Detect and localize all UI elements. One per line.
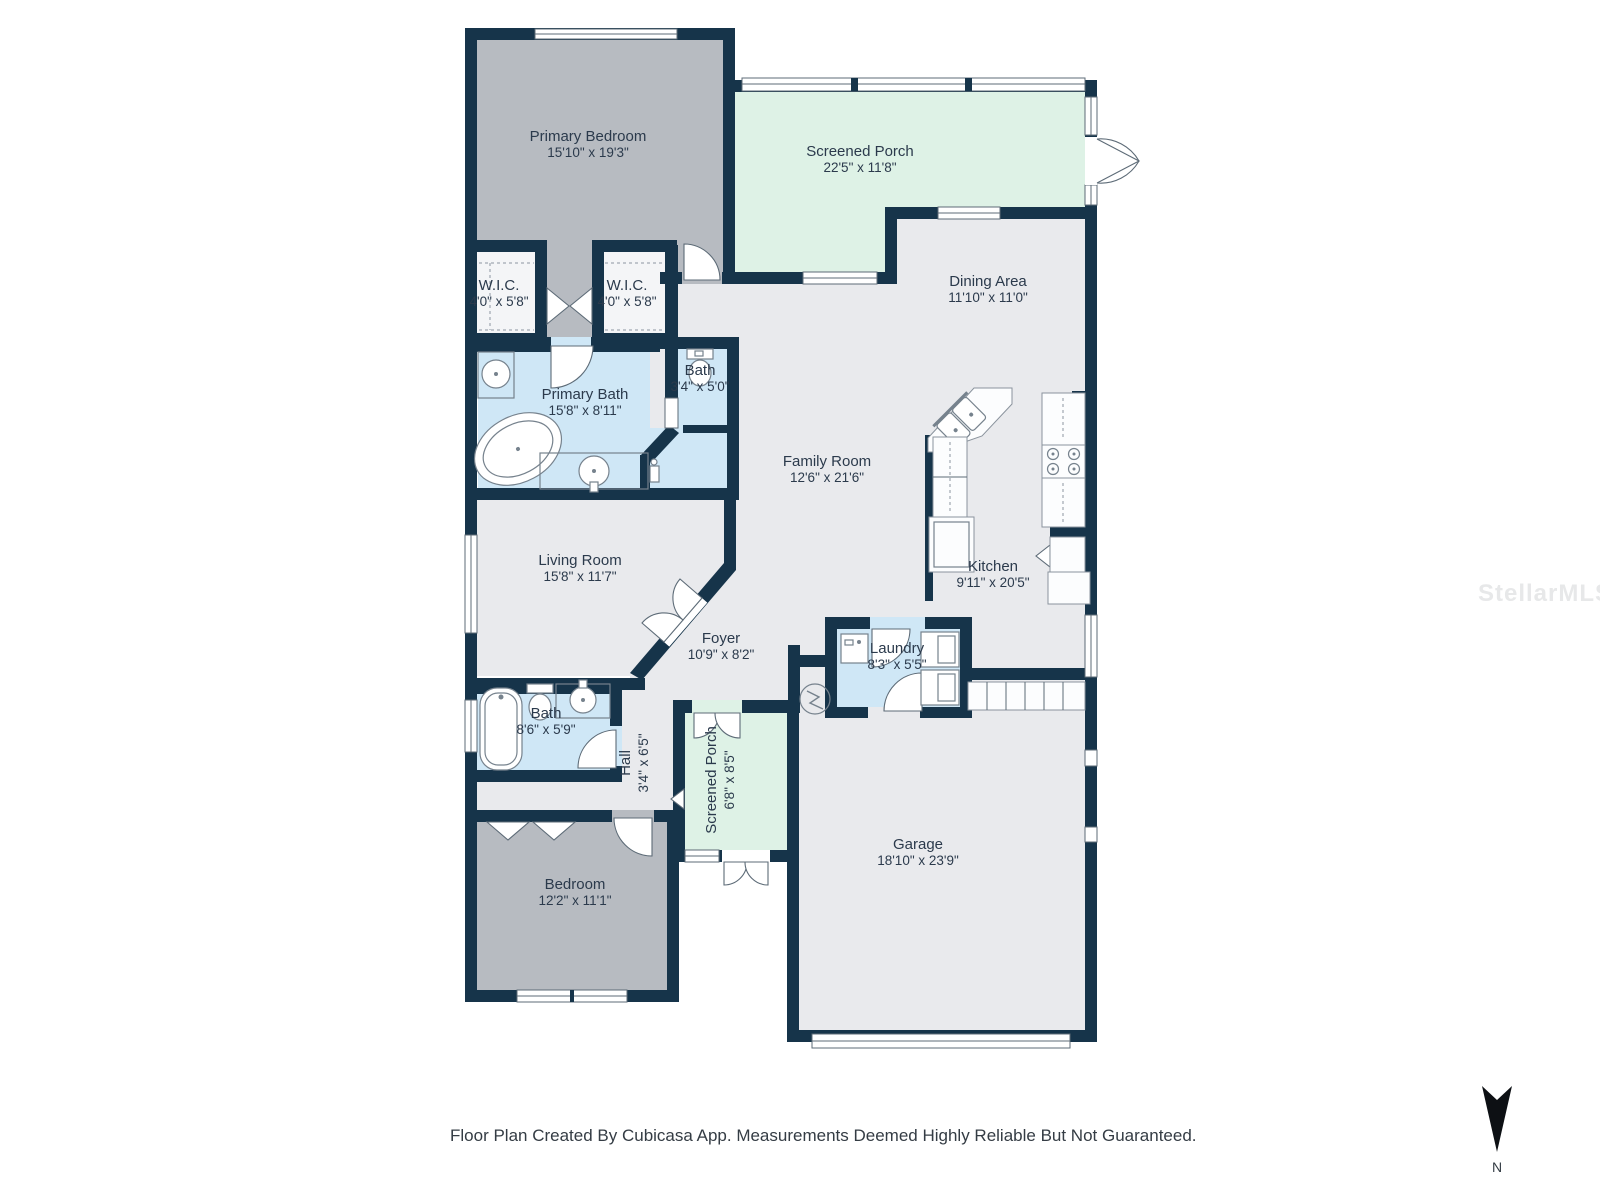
window-kitchen-right: [1085, 615, 1097, 677]
window-bedroom2-bottom: [517, 990, 627, 1002]
watermark: StellarMLS: [1478, 580, 1600, 607]
room-dims-laundry: 8'3" x 5'5": [867, 657, 926, 672]
garage-steps: [968, 682, 1085, 710]
svg-text:Hall: Hall: [617, 750, 634, 776]
room-dims-wic-left: 4'0" x 5'8": [469, 294, 528, 309]
svg-text:Screened Porch: Screened Porch: [703, 726, 720, 834]
window-primary-bedroom-top: [535, 29, 677, 39]
door-porch-exterior: [1097, 139, 1139, 183]
room-dims-bedroom2: 12'2" x 11'1": [538, 893, 611, 908]
toilet-icon: [527, 684, 553, 693]
door-porch-small-exterior-1: [724, 862, 747, 885]
laundry-sink-icon: [841, 634, 868, 663]
room-label-family-room: Family Room: [783, 453, 871, 470]
garage-side-opening-2: [1085, 827, 1097, 842]
window-porch-family: [803, 272, 877, 284]
window-porch-small-bottom: [685, 850, 719, 862]
room-label-wic-left: W.I.C.: [479, 277, 520, 294]
room-label-living-room: Living Room: [538, 552, 621, 569]
door-porch-small-exterior-2: [745, 862, 768, 885]
footer-disclaimer: Floor Plan Created By Cubicasa App. Meas…: [450, 1126, 1197, 1145]
room-label-kitchen: Kitchen: [968, 558, 1018, 575]
room-dims-wic-right: 4'0" x 5'8": [597, 294, 656, 309]
window-porch-right-upper: [1085, 97, 1097, 135]
kitchen-pantry: [1050, 537, 1085, 572]
room-label-foyer: Foyer: [702, 630, 740, 647]
faucet-icon: [650, 466, 659, 482]
dryer-icon: [921, 670, 959, 705]
north-arrow: N: [1482, 1086, 1512, 1175]
room-label-laundry: Laundry: [870, 640, 925, 657]
window-porch-right-lower: [1085, 185, 1097, 205]
room-label-water-closet: Bath: [685, 362, 716, 379]
north-arrow-icon: [1482, 1086, 1512, 1152]
room-dims-living-room: 15'8" x 11'7": [543, 569, 616, 584]
window-porch-dining: [938, 207, 1000, 219]
room-label-hall-bath: Bath: [531, 705, 562, 722]
room-dims-primary-bath: 15'8" x 8'11": [548, 403, 621, 418]
washer-icon: [921, 632, 959, 667]
svg-text:3'4" x 6'5": 3'4" x 6'5": [636, 733, 651, 792]
room-label-primary-bath: Primary Bath: [542, 386, 629, 403]
window-porch-top-band: [742, 78, 1085, 91]
room-dims-screened-porch-top: 22'5" x 11'8": [823, 160, 896, 175]
window-hall-bath-left: [465, 700, 477, 752]
north-label: N: [1492, 1159, 1502, 1175]
floor-plan: Primary Bedroom 15'10" x 19'3" Screened …: [0, 0, 1600, 1200]
room-label-garage: Garage: [893, 836, 943, 853]
room-dims-primary-bedroom: 15'10" x 19'3": [547, 145, 629, 160]
garage-side-opening-1: [1085, 750, 1097, 766]
room-dims-garage: 18'10" x 23'9": [877, 853, 959, 868]
room-label-bedroom2: Bedroom: [545, 876, 606, 893]
room-label-screened-porch-top: Screened Porch: [806, 143, 914, 160]
room-dims-kitchen: 9'11" x 20'5": [956, 575, 1029, 590]
room-dims-family-room: 12'6" x 21'6": [790, 470, 864, 485]
svg-text:6'8" x 8'5": 6'8" x 8'5": [722, 750, 737, 809]
room-label-wic-right: W.I.C.: [607, 277, 648, 294]
room-label-dining: Dining Area: [949, 273, 1027, 290]
room-dims-water-closet: 3'4" x 5'0": [670, 379, 729, 394]
room-dims-dining: 11'10" x 11'0": [948, 290, 1028, 305]
floor-plan-page: Primary Bedroom 15'10" x 19'3" Screened …: [0, 0, 1600, 1200]
room-label-primary-bedroom: Primary Bedroom: [530, 128, 647, 145]
room-dims-foyer: 10'9" x 8'2": [688, 647, 755, 662]
room-dims-hall-bath: 8'6" x 5'9": [516, 722, 575, 737]
door-water-closet-pocket: [665, 398, 678, 428]
window-living-left: [465, 535, 477, 633]
